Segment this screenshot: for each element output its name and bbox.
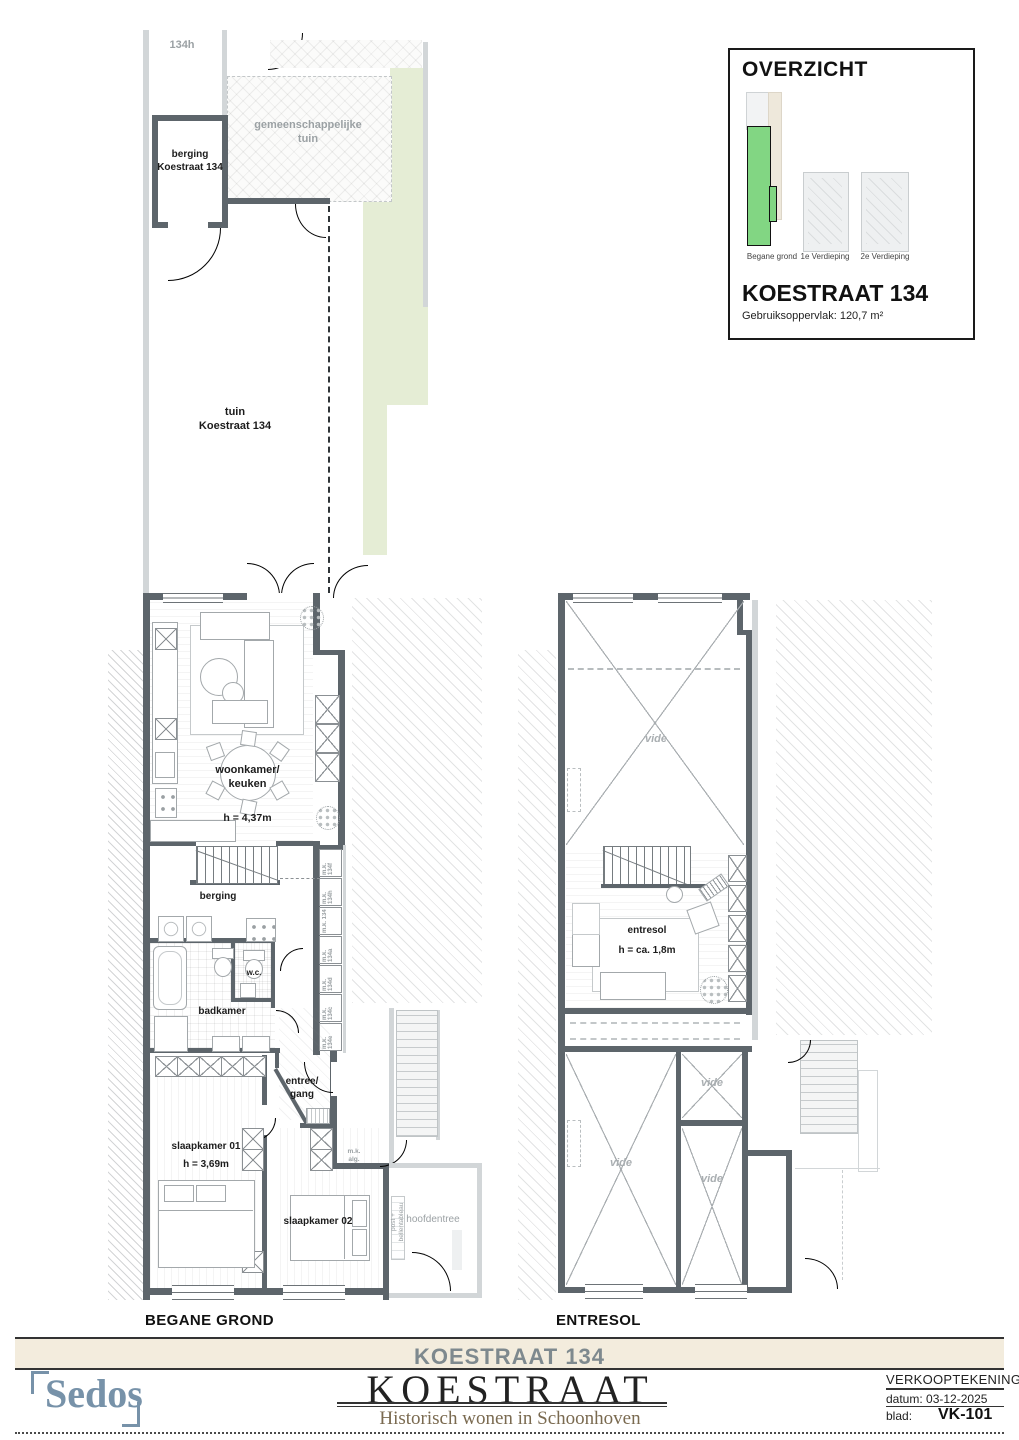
- kitchen-sink: [155, 752, 175, 778]
- neighbor-wall: [752, 600, 758, 1040]
- cooktop: [155, 788, 177, 818]
- date-row: datum: 03-12-2025: [886, 1392, 987, 1406]
- garden-right-wall: [423, 42, 428, 307]
- entresol-bottom-window: [585, 1284, 643, 1299]
- neighbor-line: [795, 1168, 880, 1169]
- washing-machine: [158, 916, 184, 942]
- gf-left-wall: [143, 593, 150, 1300]
- entrance-sidelight: [452, 1230, 462, 1270]
- shed-door-opening: [168, 221, 208, 228]
- garden-shed-label: berging Koestraat 134: [154, 148, 226, 174]
- neighbor-plot-label: 134h: [160, 38, 204, 52]
- toilet-bowl: [214, 957, 232, 977]
- private-garden-label: tuin Koestraat 134: [185, 405, 285, 434]
- mini-unit-highlight: [747, 126, 771, 246]
- entresol-room-label: entresol: [597, 924, 697, 937]
- en-right-wall-c: [742, 1046, 748, 1156]
- sofa-cushion: [572, 903, 600, 935]
- plant: [316, 806, 340, 830]
- tall-cabinet-x: [315, 724, 340, 753]
- pillow: [164, 1185, 194, 1202]
- meter-cupboard-label: m.k. 134f: [322, 851, 338, 875]
- pillow: [196, 1185, 226, 1202]
- shed-door-arc: [168, 228, 221, 281]
- storage-door-arc: [280, 948, 303, 971]
- en-cupboard-x: [728, 855, 747, 882]
- mini-label-floor1: 1e Verdieping: [796, 252, 854, 261]
- coffee-table: [212, 700, 268, 724]
- storage-sink-unit: [246, 918, 276, 942]
- sofa: [200, 612, 270, 640]
- wardrobe-x: [177, 1056, 200, 1077]
- neighbor-bay-arc: [805, 1258, 838, 1289]
- en-mid-wall-b: [558, 1046, 752, 1052]
- living-window: [163, 593, 223, 603]
- entrance-door-arc: [412, 1252, 451, 1291]
- storage-label: berging: [180, 890, 256, 903]
- plant: [700, 976, 728, 1004]
- bathroom-label: badkamer: [180, 1005, 264, 1018]
- washbasin: [212, 1036, 240, 1052]
- vide-lower-right: [682, 1128, 742, 1285]
- meter-cupboard: m.k. 134a: [319, 936, 342, 964]
- brand-rule-1: [337, 1402, 667, 1404]
- neighbor-backdoor-arc: [333, 565, 368, 598]
- meter-cupboard-label: m.k. 134d: [322, 967, 338, 991]
- meter-cupboard: m.k. 134: [319, 907, 342, 935]
- partition: [276, 841, 320, 846]
- wc-wall: [231, 998, 275, 1002]
- mk-alg-label: m.k. alg.: [342, 1148, 366, 1164]
- garden-green-strip-2: [363, 200, 428, 405]
- vide-label-1: vide: [606, 732, 706, 746]
- entrance-wall: [477, 1163, 482, 1298]
- vide-label-2: vide: [571, 1156, 671, 1170]
- shower: [154, 1016, 188, 1052]
- plant: [300, 606, 324, 630]
- overview-area: Gebruiksoppervlak: 120,7 m²: [742, 310, 883, 322]
- living-height-label: h = 4,37m: [200, 812, 295, 826]
- blanket-line: [158, 1210, 253, 1211]
- en-bump-top-wall: [742, 1150, 792, 1156]
- brand-tagline: Historisch wonen in Schoonhoven: [260, 1408, 760, 1430]
- neighbor-stairs: [396, 1010, 438, 1137]
- sheet-number: VK-101: [938, 1406, 992, 1424]
- en-cupboard-x: [728, 975, 747, 1002]
- garden-gate-arc: [295, 204, 326, 238]
- wardrobe-x: [310, 1149, 333, 1171]
- dining-chair: [240, 730, 257, 747]
- overview-title: OVERZICHT: [742, 58, 868, 82]
- washbasin: [242, 1036, 270, 1052]
- hall-label: entree/ gang: [276, 1075, 328, 1101]
- doc-type-label: VERKOOPTEKENING: [886, 1372, 1019, 1387]
- bedroom1-window: [172, 1285, 234, 1300]
- wardrobe-x: [243, 1056, 266, 1077]
- meter-cupboard-label: m.k. 134h: [322, 880, 338, 904]
- en-cupboard-x: [728, 885, 747, 912]
- tall-cabinet-x: [315, 753, 340, 782]
- sheet-perforation-line: [15, 1432, 1004, 1434]
- mini-floor2-detail: [866, 178, 902, 244]
- living-room-label: woonkamer/ keuken: [200, 763, 295, 792]
- en-vide-divider-h: [681, 1120, 746, 1126]
- wc-label: w.c.: [237, 968, 271, 978]
- bedroom2-label: slaapkamer 02: [272, 1215, 364, 1228]
- vide-label-3: vide: [662, 1076, 762, 1090]
- wardrobe-x: [199, 1056, 222, 1077]
- mini-label-floor2: 2e Verdieping: [856, 252, 914, 261]
- doormat: [306, 1108, 330, 1124]
- entresol-caption: ENTRESOL: [556, 1312, 641, 1329]
- sheet-label: blad:: [886, 1409, 912, 1423]
- drawing-sheet: 134h gemeenschappelijke tuin berging Koe…: [0, 0, 1019, 1440]
- wc-basin: [240, 983, 256, 998]
- post-bell-label: post + bellentableau: [390, 1192, 406, 1252]
- cabinet-x: [155, 718, 177, 740]
- meter-cupboard-label: m.k. 134: [322, 909, 338, 933]
- dryer: [186, 916, 212, 942]
- dashed-object: [567, 1120, 581, 1167]
- meter-cupboard-label: m.k. 134a: [322, 938, 338, 962]
- en-mid-wall-a: [558, 1008, 752, 1014]
- neighbor-hatch-mid: [518, 650, 556, 1300]
- garden-green-strip-3: [363, 405, 387, 555]
- bedroom1-height-label: h = 3,69m: [160, 1158, 252, 1171]
- side-table-small: [666, 886, 683, 903]
- mini-floor1-detail: [808, 178, 842, 244]
- french-door-left-arc: [247, 563, 280, 596]
- bedroom2-window: [283, 1285, 345, 1300]
- wardrobe-x: [310, 1128, 333, 1150]
- en-bump-right-wall: [786, 1156, 792, 1293]
- common-garden-hatch-top: [270, 40, 422, 68]
- bedroom1-label: slaapkamer 01: [160, 1140, 252, 1153]
- entresol-height-label: h = ca. 1,8m: [597, 944, 697, 957]
- common-garden-label: gemeenschappelijke tuin: [238, 118, 378, 147]
- stair-dashed-line: [280, 878, 320, 879]
- logo-bracket-bottomright: [122, 1402, 140, 1427]
- pillow: [352, 1229, 367, 1256]
- corridor-outer-line: [343, 845, 346, 1053]
- entresol-bottom-window: [695, 1284, 747, 1299]
- strip-dashed-2: [570, 1038, 740, 1040]
- wardrobe-x: [155, 1056, 178, 1077]
- en-left-wall: [558, 593, 565, 1293]
- meter-cupboard: m.k. 134d: [319, 965, 342, 993]
- neighbor-hatch-right: [776, 600, 932, 1035]
- neighbor-dashed: [842, 1170, 843, 1280]
- ground-floor-caption: BEGANE GROND: [145, 1312, 274, 1329]
- vide-dashed-line: [568, 668, 740, 670]
- strip-dashed-1: [570, 1022, 740, 1024]
- vide-label-4: vide: [662, 1172, 762, 1186]
- tall-cabinet-x: [315, 695, 340, 724]
- french-door-right-arc: [281, 563, 314, 596]
- info-rule-1: [886, 1388, 1004, 1390]
- date-value: 03-12-2025: [926, 1392, 987, 1406]
- meter-cupboard: m.k. 134h: [319, 878, 342, 906]
- property-boundary-dashed: [328, 206, 330, 593]
- main-entrance-label: hoofdentree: [396, 1213, 470, 1226]
- en-cupboard-x: [728, 915, 747, 942]
- wardrobe-x: [221, 1056, 244, 1077]
- french-door-opening: [247, 593, 313, 600]
- dashed-object: [567, 768, 581, 812]
- entrance-wall: [389, 1293, 482, 1298]
- neighbor-stairs: [800, 1040, 858, 1134]
- neighbor-outline: [858, 1070, 878, 1172]
- bathtub-inner: [158, 951, 182, 1005]
- neighbor-hatch-right: [352, 598, 482, 1003]
- mini-unit-highlight-step: [769, 186, 777, 222]
- meter-cupboard: m.k. 134f: [319, 849, 342, 877]
- sofa: [600, 972, 666, 1000]
- overview-building-title: KOESTRAAT 134: [742, 280, 928, 307]
- en-cupboard-x: [728, 945, 747, 972]
- date-label: datum:: [886, 1392, 923, 1406]
- garden-left-wall: [143, 30, 149, 595]
- entrance-wall: [389, 1163, 480, 1168]
- gf-right-wall-e: [383, 1163, 389, 1300]
- vide-upper: [566, 601, 744, 845]
- brand-rule-2: [337, 1406, 667, 1407]
- cabinet-x: [155, 628, 177, 650]
- mini-shed-outline: [746, 92, 770, 130]
- neighbor-hatch-left: [108, 650, 143, 1300]
